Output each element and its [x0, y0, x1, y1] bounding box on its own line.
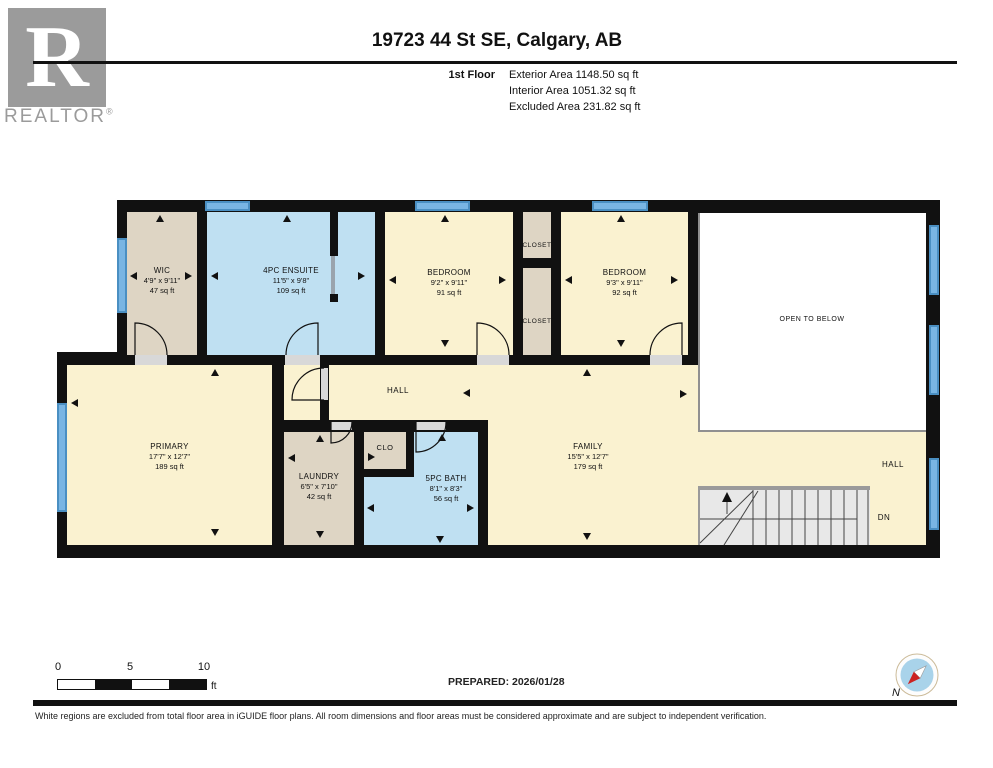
scale-segment: [95, 680, 132, 689]
dim-arrow-left-icon: [389, 276, 396, 284]
room-name: PRIMARY: [67, 442, 272, 452]
window-top-bedroom2: [592, 201, 648, 211]
label-bedroom1: BEDROOM 9'2" x 9'11" 91 sq ft: [385, 268, 513, 298]
room-dims: 9'3" x 9'11": [561, 278, 688, 288]
room-name: 4PC ENSUITE: [207, 266, 375, 276]
scale-segment: [169, 680, 206, 689]
window-right-2: [929, 325, 939, 395]
room-name: BEDROOM: [561, 268, 688, 278]
compass-north-label: N: [892, 687, 900, 699]
dim-arrow-down-icon: [436, 536, 444, 543]
dim-arrow-up-icon: [316, 435, 324, 442]
room-area: 109 sq ft: [207, 286, 375, 296]
scale-unit: ft: [211, 681, 217, 692]
dim-arrow-left-icon: [71, 399, 78, 407]
laundry-door-gap: [331, 422, 352, 430]
bedroom1-door-gap: [477, 355, 509, 365]
label-hall-upper: HALL: [374, 386, 422, 395]
label-closet-bottom: CLOSET: [517, 318, 557, 325]
room-dims: 15'5" x 12'7": [488, 452, 688, 462]
dim-arrow-left-icon: [288, 454, 295, 462]
room-name: BEDROOM: [385, 268, 513, 278]
scale-bar: [57, 679, 207, 690]
dim-arrow-up-icon: [283, 215, 291, 222]
dim-arrow-up-icon: [156, 215, 164, 222]
room-dims: 17'7" x 12'7": [67, 452, 272, 462]
label-bedroom2: BEDROOM 9'3" x 9'11" 92 sq ft: [561, 268, 688, 298]
dim-arrow-right-icon: [368, 453, 375, 461]
label-laundry: LAUNDRY 6'5" x 7'10" 42 sq ft: [279, 472, 359, 502]
scale-segment: [132, 680, 169, 689]
dim-arrow-right-icon: [358, 272, 365, 280]
dim-arrow-left-icon: [367, 504, 374, 512]
room-area: 47 sq ft: [127, 286, 197, 296]
dim-arrow-up-icon: [441, 215, 449, 222]
ensuite-nook-wall: [330, 212, 338, 256]
disclaimer-text: White regions are excluded from total fl…: [35, 711, 965, 721]
room-dims: 11'5" x 9'8": [207, 276, 375, 286]
room-name: LAUNDRY: [279, 472, 359, 482]
stat-excluded-area: Excluded Area 231.82 sq ft: [509, 101, 729, 113]
dim-arrow-down-icon: [583, 533, 591, 540]
bedroom2-door-gap: [650, 355, 682, 365]
primary-right-wall: [272, 355, 284, 545]
label-dn: DN: [874, 513, 894, 522]
clo-right-wall: [406, 432, 414, 477]
dim-arrow-up-icon: [583, 369, 591, 376]
dim-arrow-down-icon: [316, 531, 324, 538]
header-rule: [33, 61, 957, 64]
prepared-date: PREPARED: 2026/01/28: [448, 676, 565, 688]
scale-tick-10: 10: [194, 661, 214, 673]
label-bath: 5PC BATH 8'1" x 8'3" 56 sq ft: [401, 474, 491, 504]
floor-label: 1st Floor: [395, 69, 495, 81]
room-area: 56 sq ft: [401, 494, 491, 504]
dim-arrow-down-icon: [211, 529, 219, 536]
staircase: [698, 490, 870, 545]
room-dims: 8'1" x 8'3": [401, 484, 491, 494]
dim-arrow-left-icon: [130, 272, 137, 280]
room-dims: 6'5" x 7'10": [279, 482, 359, 492]
dim-arrow-left-icon: [565, 276, 572, 284]
dim-arrow-right-icon: [185, 272, 192, 280]
window-left-wic: [117, 238, 127, 313]
dim-arrow-up-icon: [617, 215, 625, 222]
stat-exterior-area: Exterior Area 1148.50 sq ft: [509, 69, 729, 81]
window-left-primary: [57, 403, 67, 512]
bath-door-gap: [416, 422, 446, 430]
stat-interior-area: Interior Area 1051.32 sq ft: [509, 85, 729, 97]
dim-arrow-right-icon: [671, 276, 678, 284]
floor-plan-page: R REALTOR® 19723 44 St SE, Calgary, AB 1…: [0, 0, 993, 768]
ensuite-door-gap: [285, 355, 320, 365]
brand-text: REALTOR: [4, 106, 106, 127]
dim-arrow-down-icon: [441, 340, 449, 347]
label-wic: WIC 4'9" x 9'11" 47 sq ft: [127, 266, 197, 296]
dim-arrow-left-icon: [463, 389, 470, 397]
hall-bottom-wall: [272, 420, 488, 432]
dim-arrow-right-icon: [680, 390, 687, 398]
room-closet-bottom: [523, 268, 551, 355]
dim-arrow-right-icon: [467, 504, 474, 512]
label-ensuite: 4PC ENSUITE 11'5" x 9'8" 109 sq ft: [207, 266, 375, 296]
realtor-wordmark: REALTOR®: [4, 106, 134, 128]
realtor-r-icon: R: [8, 8, 106, 107]
room-area: 42 sq ft: [279, 492, 359, 502]
registered-mark: ®: [106, 107, 115, 117]
room-area: 189 sq ft: [67, 462, 272, 472]
window-right-1: [929, 225, 939, 295]
dim-arrow-right-icon: [499, 276, 506, 284]
scale-tick-5: 5: [122, 661, 138, 673]
window-right-3: [929, 458, 939, 530]
footer-rule: [33, 700, 957, 706]
label-closet-top: CLOSET: [517, 242, 557, 249]
label-clo: CLO: [364, 443, 406, 452]
room-name: FAMILY: [488, 442, 688, 452]
window-top-bedroom1: [415, 201, 470, 211]
room-dims: 9'2" x 9'11": [385, 278, 513, 288]
room-area: 179 sq ft: [488, 462, 688, 472]
room-area: 92 sq ft: [561, 288, 688, 298]
room-name: 5PC BATH: [401, 474, 491, 484]
label-family: FAMILY 15'5" x 12'7" 179 sq ft: [488, 442, 688, 472]
room-closet-top: [523, 212, 551, 258]
dim-arrow-left-icon: [211, 272, 218, 280]
window-top-ensuite: [205, 201, 250, 211]
dim-arrow-down-icon: [617, 340, 625, 347]
label-hall-lower: HALL: [868, 460, 918, 469]
realtor-logo: R: [8, 8, 106, 107]
wic-door-gap: [135, 355, 167, 365]
label-open-to-below: OPEN TO BELOW: [698, 316, 926, 323]
compass-icon: [893, 651, 941, 699]
primary-door-gap: [321, 368, 328, 400]
dim-arrow-up-icon: [211, 369, 219, 376]
scale-segment: [58, 680, 95, 689]
room-area: 91 sq ft: [385, 288, 513, 298]
label-primary: PRIMARY 17'7" x 12'7" 189 sq ft: [67, 442, 272, 472]
scale-tick-0: 0: [50, 661, 66, 673]
page-title: 19723 44 St SE, Calgary, AB: [247, 30, 747, 52]
dim-arrow-up-icon: [438, 434, 446, 441]
